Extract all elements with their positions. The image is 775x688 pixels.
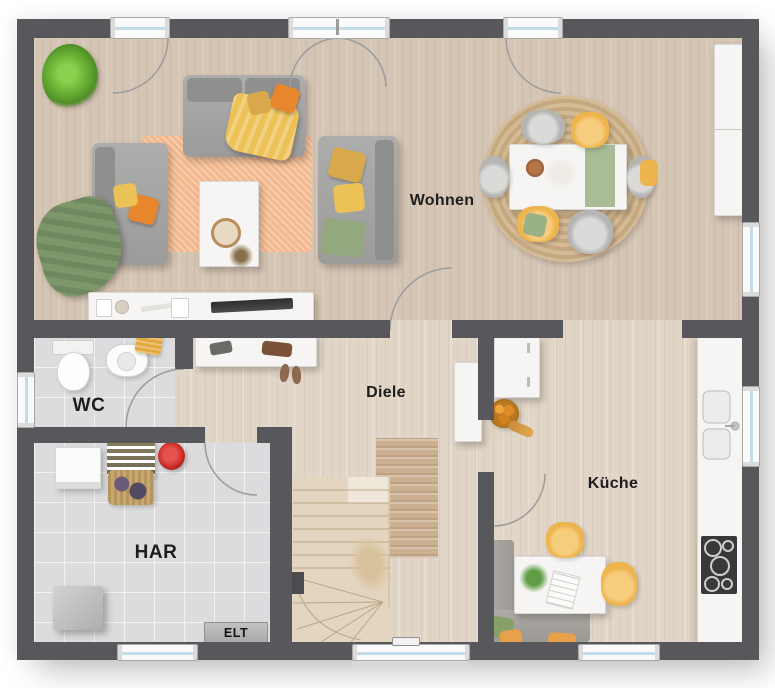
potted-plant — [42, 44, 98, 110]
magazine — [545, 570, 580, 610]
centerpiece-pot — [526, 159, 544, 177]
wall-sideboard — [714, 44, 744, 216]
washer-panel — [56, 482, 100, 488]
coffee-table — [199, 181, 259, 267]
wall-living-hall-left — [34, 320, 390, 338]
wall-wc-har — [34, 427, 205, 443]
fridge-handle — [527, 343, 530, 353]
chimney-block — [292, 572, 304, 594]
decor-remote — [141, 303, 171, 312]
wall-kitchen-upper — [478, 337, 494, 420]
window-top-2-double — [288, 17, 390, 39]
kitchen-chair-yellow — [601, 562, 637, 606]
room-label-har: HAR — [135, 542, 178, 564]
laundry-basket — [108, 470, 154, 505]
table-runner — [585, 145, 615, 207]
table-plant — [228, 244, 254, 268]
room-label-kueche: Küche — [588, 475, 638, 493]
window-bottom-kitchen — [578, 644, 660, 661]
armchair-back-cushion — [375, 140, 394, 260]
window-top-1 — [110, 17, 170, 39]
freezer — [53, 586, 103, 630]
room-label-diele: Diele — [366, 384, 406, 402]
toilet — [57, 352, 90, 391]
washing-machine — [55, 447, 101, 489]
wall-living-hall-mid — [452, 320, 563, 338]
wall-kitchen-lower — [478, 472, 494, 642]
clutch-bag — [261, 340, 292, 357]
floor-plan: ELT — [0, 0, 775, 688]
entry-threshold — [352, 660, 468, 668]
keys-tray — [209, 340, 233, 356]
decor-books — [171, 298, 189, 318]
dining-chair-gray — [521, 110, 565, 144]
wall-exterior-left — [17, 38, 34, 660]
room-label-wc: WC — [73, 395, 106, 417]
fridge — [494, 336, 540, 398]
table-plant — [519, 563, 549, 593]
napkin-green — [522, 212, 548, 238]
window-bottom-har — [117, 644, 198, 661]
decor-books — [96, 299, 112, 317]
wall-living-kitchen — [682, 320, 742, 338]
fridge-handle — [527, 377, 530, 387]
yellow-pillow — [113, 183, 139, 209]
window-left-wc — [17, 372, 35, 428]
centerpiece-flowers — [544, 157, 578, 191]
red-bucket — [158, 442, 185, 470]
wall-har-stub — [257, 427, 292, 443]
dining-chair-yellow — [571, 112, 609, 148]
wall-exterior-right — [742, 38, 759, 660]
entry-door-handle — [392, 637, 420, 646]
room-label-wohnen: Wohnen — [410, 192, 475, 210]
elt-panel: ELT — [204, 622, 268, 644]
dining-chair-gray — [567, 210, 613, 254]
yellow-pillow — [333, 183, 366, 214]
window-mullion — [336, 19, 339, 35]
kitchen-counter — [697, 337, 743, 642]
dining-table — [509, 144, 627, 210]
kitchen-table — [514, 556, 606, 614]
window-right-kitchen — [742, 386, 760, 467]
mustard-pillow — [246, 90, 272, 116]
decor-pot — [115, 300, 129, 314]
wall-wc-right — [175, 338, 193, 369]
sideboard-divider — [715, 129, 743, 130]
window-right-living — [742, 222, 760, 297]
chair-cushion-yellow — [640, 160, 658, 186]
kitchen-chair-yellow — [546, 522, 584, 558]
wall-har-stair — [270, 443, 292, 642]
tv — [211, 298, 293, 313]
entry-shelf — [195, 333, 317, 367]
sink-basin — [117, 352, 136, 371]
elt-label: ELT — [224, 626, 248, 640]
entry-door — [352, 644, 470, 661]
window-top-3 — [503, 17, 563, 39]
dining-chair-gray — [479, 156, 509, 198]
green-pillow — [320, 218, 366, 258]
